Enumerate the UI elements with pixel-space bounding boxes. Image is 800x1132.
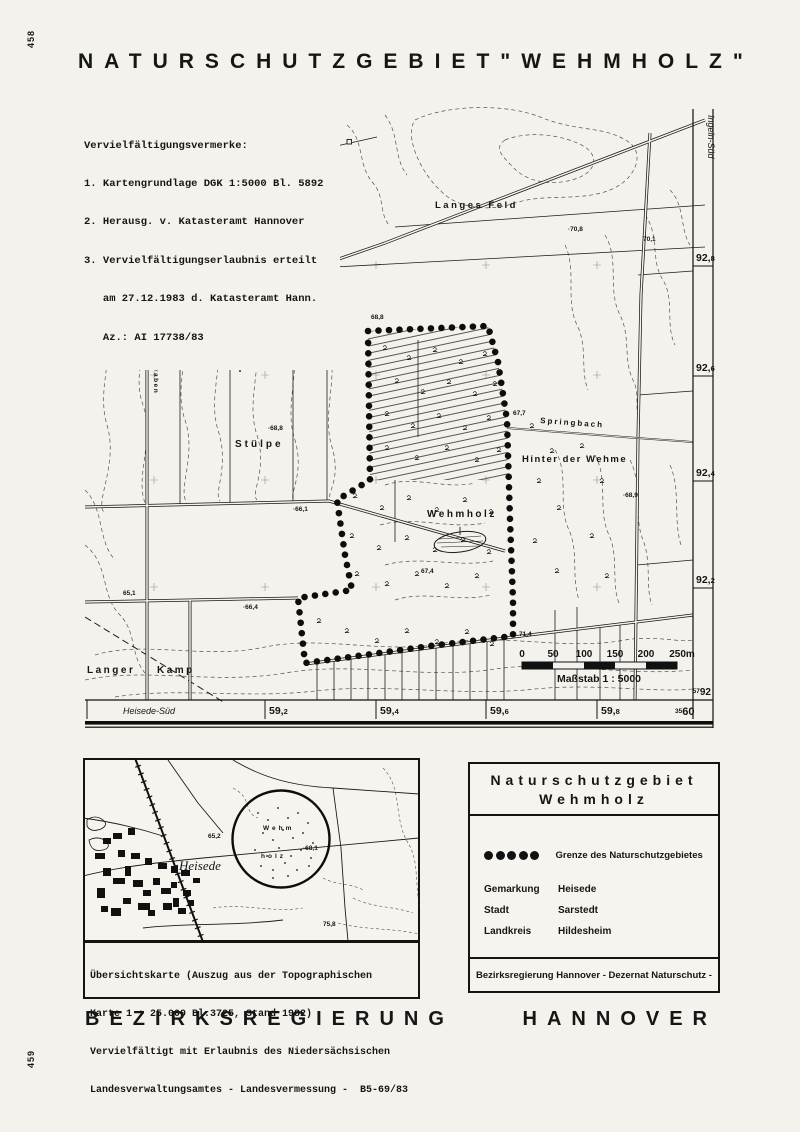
legend-row-stadt: Stadt Sarstedt — [484, 905, 708, 916]
svg-text:·66,4: ·66,4 — [243, 604, 258, 611]
overview-circle-word2: holz — [261, 853, 286, 860]
svg-text:67,4: 67,4 — [421, 568, 434, 575]
legend-body: Grenze des Naturschutzgebietes Gemarkung… — [470, 816, 718, 957]
reproduction-notes: Vervielfältigungsvermerke: 1. Kartengrun… — [84, 114, 340, 370]
svg-text:92,6: 92,6 — [696, 362, 715, 374]
legend-title: Naturschutzgebiet Wehmholz — [470, 764, 718, 816]
svg-text:67,7: 67,7 — [513, 410, 526, 417]
svg-text:59,2: 59,2 — [269, 705, 288, 717]
corner-easting: 3560 — [675, 706, 694, 718]
label-langer: Langer — [87, 665, 135, 676]
overview-map: Heisede Wehm holz 65,2 ·68,1 75,8 — [83, 758, 420, 942]
svg-text:·70,8: ·70,8 — [568, 226, 583, 233]
svg-text:71,4: 71,4 — [519, 631, 532, 638]
overview-town-label: Heisede — [178, 858, 221, 873]
legend-title-line1: Naturschutzgebiet — [470, 771, 718, 790]
springbach-stream — [507, 428, 693, 442]
reserve-hatch-area — [368, 326, 509, 480]
neighbor-sheet-right: Ingeln-Süd — [706, 115, 715, 160]
legend-row-gemarkung: Gemarkung Heisede — [484, 884, 708, 895]
overview-circle-word1: Wehm — [263, 825, 294, 832]
svg-text:250m: 250m — [669, 649, 695, 660]
boundary-dot-icon — [484, 851, 493, 860]
boundary-symbol-label: Grenze des Naturschutzgebietes — [556, 850, 703, 861]
svg-text:59,8: 59,8 — [601, 705, 620, 717]
corner-northing: 5792 — [693, 687, 712, 698]
svg-text:0: 0 — [519, 649, 525, 660]
footer-title-word1: BEZIRKSREGIERUNG — [85, 1008, 454, 1031]
svg-text:70,1: 70,1 — [643, 236, 656, 243]
boundary-dot-icon — [530, 851, 539, 860]
label-hinter-der-wehme: Hinter der Wehme — [522, 454, 627, 465]
footer-title-word2: HANNOVER — [523, 1008, 717, 1031]
neighbor-sheet-bottom: Heisede-Süd — [123, 706, 176, 716]
svg-text:·66,1: ·66,1 — [293, 506, 308, 513]
page-title-word1: NATURSCHUTZGEBIET — [78, 50, 500, 74]
footer-title: BEZIRKSREGIERUNG HANNOVER — [85, 1008, 717, 1031]
overview-map-canvas: Heisede Wehm holz 65,2 ·68,1 75,8 — [83, 758, 420, 942]
field-track — [85, 617, 225, 703]
svg-text:·68,1: ·68,1 — [303, 845, 318, 852]
boundary-dot-icon — [507, 851, 516, 860]
overview-caption: Übersichtskarte (Auszug aus der Topograp… — [83, 941, 420, 999]
scale-caption: Maßstab 1 : 5000 — [557, 673, 641, 685]
scale-bar: 0 50 100 150 200 250m Maßstab 1 : 5000 — [519, 649, 695, 685]
label-wehmholz: Wehmholz — [427, 509, 497, 520]
page-title-word2: "WEHMHOLZ" — [500, 50, 754, 74]
legend-box: Naturschutzgebiet Wehmholz Grenze des Na… — [468, 762, 720, 993]
sheet-number-bottom: 459 — [26, 1050, 36, 1068]
svg-text:65,1: 65,1 — [123, 590, 136, 597]
boundary-dot-icon — [496, 851, 505, 860]
boundary-symbol-row: Grenze des Naturschutzgebietes — [484, 850, 703, 861]
page-title: NATURSCHUTZGEBIET "WEHMHOLZ" — [78, 50, 730, 74]
legend-row-landkreis: Landkreis Hildesheim — [484, 926, 708, 937]
svg-text:150: 150 — [607, 649, 624, 660]
svg-text:59,4: 59,4 — [380, 705, 400, 717]
svg-text:100: 100 — [576, 649, 593, 660]
svg-text:50: 50 — [547, 649, 559, 660]
svg-text:200: 200 — [638, 649, 655, 660]
sheet-number-top: 458 — [26, 30, 36, 48]
legend-footer: Bezirksregierung Hannover - Dezernat Nat… — [470, 957, 718, 991]
notes-heading: Vervielfältigungsvermerke: — [84, 140, 340, 153]
legend-title-line2: Wehmholz — [470, 790, 718, 809]
svg-text:·68,8: ·68,8 — [268, 425, 283, 432]
svg-text:92,2: 92,2 — [696, 574, 715, 586]
svg-text:92,8: 92,8 — [696, 252, 715, 264]
svg-text:65,2: 65,2 — [208, 833, 221, 840]
svg-text:68,8: 68,8 — [371, 314, 384, 321]
svg-text:75,8: 75,8 — [323, 921, 336, 928]
label-stuelpe: Stülpe — [235, 439, 284, 450]
label-langes-feld: Langes Feld — [435, 200, 518, 211]
scanned-map-sheet: 458 459 NATURSCHUTZGEBIET "WEHMHOLZ" — [0, 0, 800, 1132]
boundary-dot-icon — [519, 851, 528, 860]
label-kamp: Kamp — [157, 665, 195, 676]
label-springbach: Springbach — [540, 416, 604, 429]
svg-text:92,4: 92,4 — [696, 467, 715, 479]
svg-text:59,6: 59,6 — [490, 705, 509, 717]
svg-text:·68,9: ·68,9 — [623, 492, 638, 499]
